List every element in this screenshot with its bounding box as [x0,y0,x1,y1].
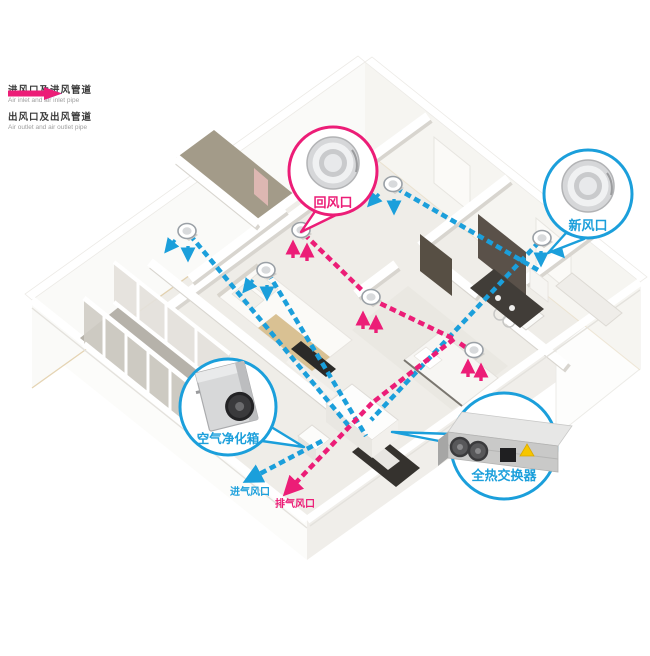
legend-outlet-en: Air outlet and air outlet pipe [8,124,92,132]
exhaust-vent-label: 排气风口 [275,497,315,510]
outlet-arrow-icon [8,87,62,100]
isometric-house-scene: 回风口 新风口 空气净化箱 [0,0,650,656]
return-air-label: 回风口 [313,195,352,210]
legend: 进风口及进风管道 Air inlet and air inlet pipe 出风… [8,86,92,140]
fresh-air-label: 新风口 [568,218,607,233]
heat-exchanger-label: 全热交换器 [470,468,537,483]
round-diffuser-icon [307,137,359,189]
legend-outlet-zh: 出风口及出风管道 [8,113,92,123]
ventilation-system-diagram: 回风口 新风口 空气净化箱 [0,0,650,656]
legend-outlet-row: 出风口及出风管道 Air outlet and air outlet pipe [8,113,92,132]
purifier-label: 空气净化箱 [197,431,260,446]
round-diffuser-icon [562,160,614,212]
intake-vent-label: 进气风口 [230,485,270,498]
